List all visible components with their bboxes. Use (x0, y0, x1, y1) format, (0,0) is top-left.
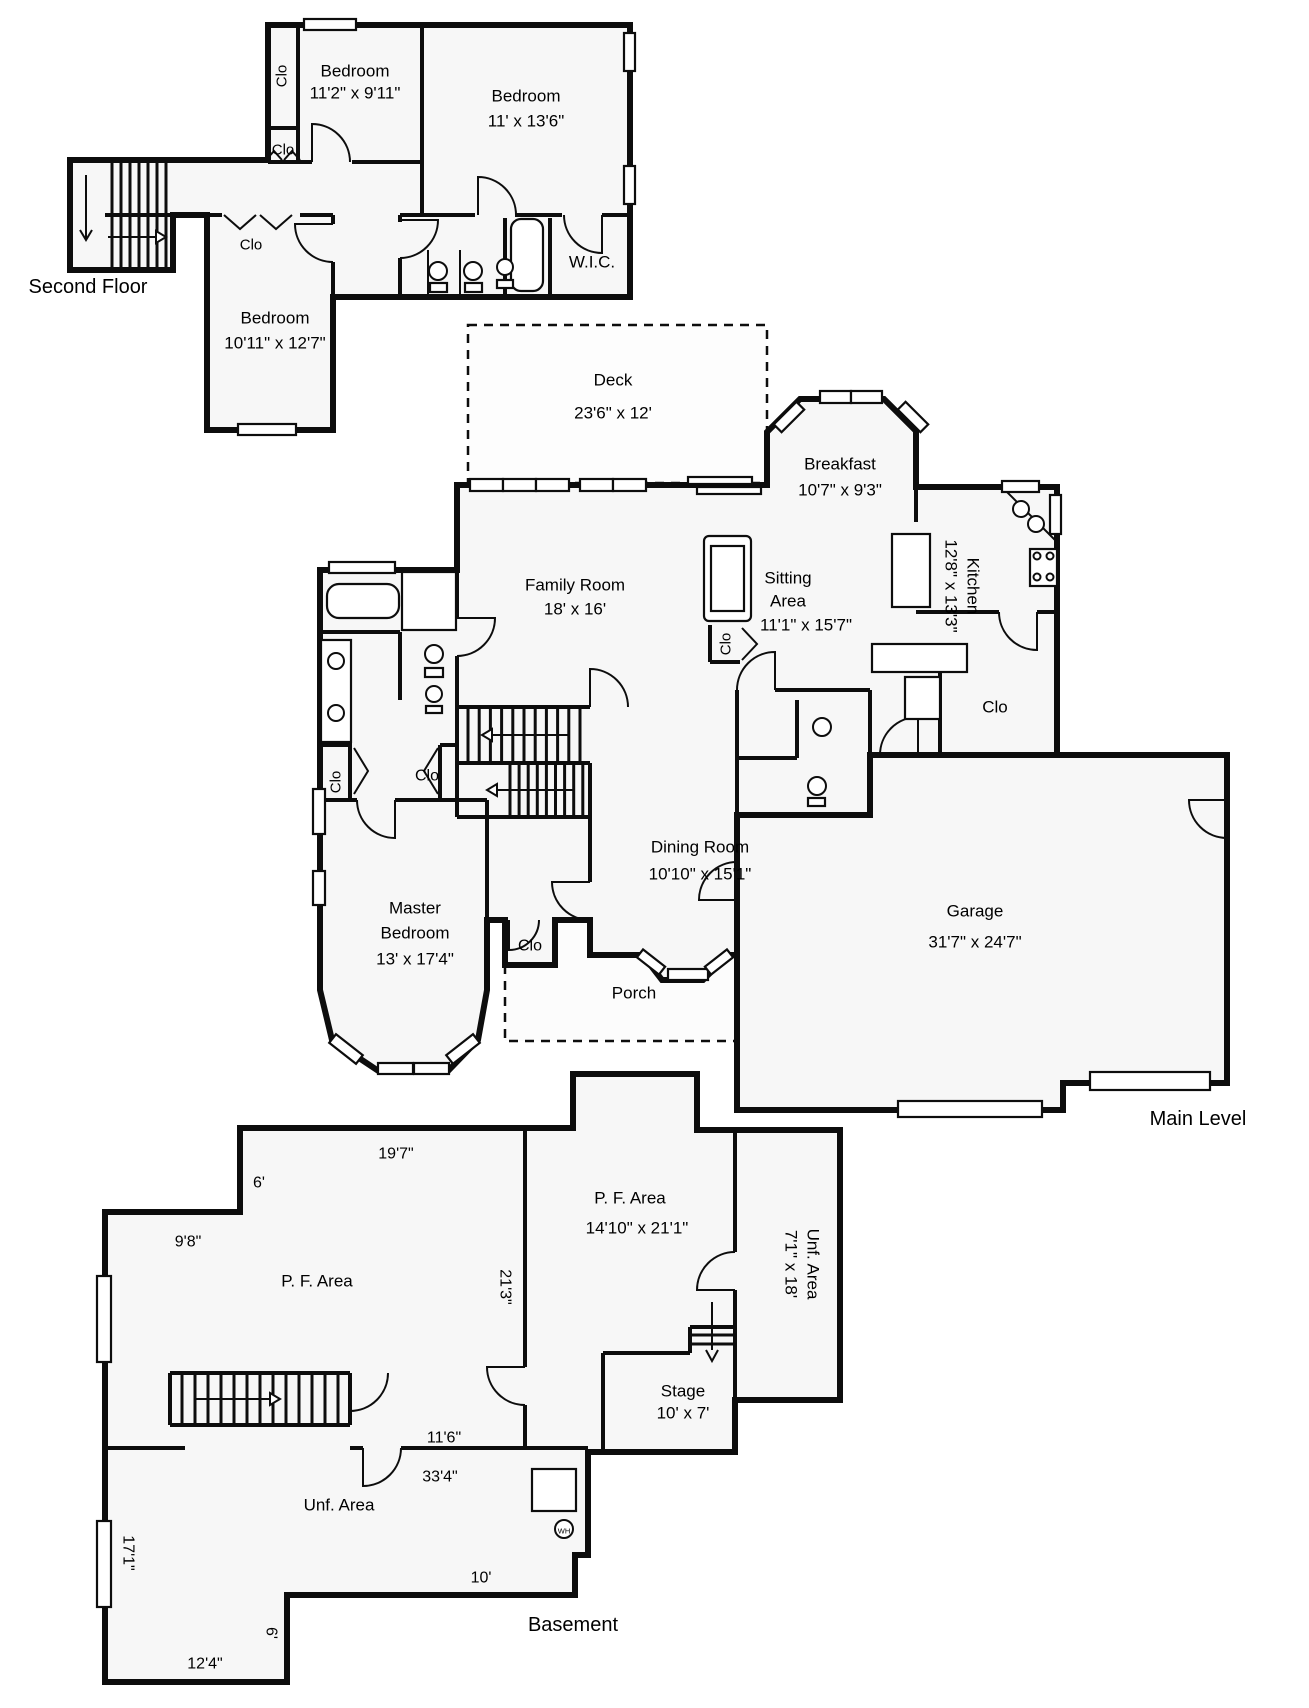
dim-kitchen: 12'8" x 13'3" (942, 539, 961, 632)
window-icon (1050, 495, 1061, 534)
window-icon (580, 479, 613, 491)
dim-bedroom1: 11'2" x 9'11" (310, 84, 401, 103)
dim-family: 18' x 16' (544, 600, 606, 619)
window-icon (378, 1063, 413, 1074)
dim-garage: 31'7" x 24'7" (928, 933, 1021, 952)
sofa-icon (711, 546, 744, 611)
room-label-pf-mid: P. F. Area (594, 1189, 666, 1208)
label-clo-hall2f: Clo (272, 142, 295, 159)
sink-icon (497, 259, 513, 275)
toilet-tank (430, 283, 447, 292)
dim-bedroom3: 10'11" x 12'7" (224, 334, 325, 353)
room-label-pf-left: P. F. Area (281, 1272, 353, 1291)
sink-base (497, 280, 513, 288)
dim-pf-mid: 14'10" x 21'1" (586, 1219, 689, 1238)
dim-98: 9'8" (175, 1234, 202, 1251)
window-icon (820, 391, 851, 403)
window-icon (503, 479, 536, 491)
dim-334: 33'4" (422, 1469, 457, 1486)
label-clo-master: Clo (518, 938, 542, 955)
toilet-tank (465, 283, 482, 292)
label-clo-sitting: Clo (718, 633, 735, 656)
dim-197: 19'7" (378, 1146, 413, 1163)
window-icon (97, 1276, 111, 1362)
toilet-tank (425, 668, 443, 677)
dim-6b: 6' (263, 1627, 280, 1639)
window-icon (697, 487, 761, 494)
window-icon (1090, 1072, 1210, 1090)
sink-icon (1028, 516, 1044, 532)
room-label-sitting2: Area (770, 592, 806, 611)
basement-area (105, 1074, 840, 1682)
toilet-icon (429, 262, 447, 280)
sink-icon (813, 718, 831, 736)
dim-unf-right: 7'1" x 18' (782, 1230, 801, 1298)
window-icon (329, 562, 395, 573)
dim-master: 13' x 17'4" (376, 950, 454, 969)
room-label-wic: W.I.C. (569, 253, 615, 272)
label-clo-bath: Clo (328, 771, 345, 794)
dim-bedroom2: 11' x 13'6" (488, 112, 564, 131)
room-label-kitchen: Kitchen (964, 558, 983, 615)
window-icon (1002, 481, 1039, 492)
dim-dining: 10'10" x 15'1" (649, 865, 752, 884)
window-icon (414, 1063, 449, 1074)
room-label-master2: Bedroom (381, 924, 450, 943)
room-label-garage: Garage (947, 902, 1004, 921)
dim-213: 21'3" (497, 1269, 514, 1304)
room-label-bedroom2: Bedroom (492, 87, 561, 106)
room-label-deck: Deck (594, 371, 633, 390)
toilet-icon (464, 262, 482, 280)
toilet-icon (425, 645, 443, 663)
window-icon (238, 424, 296, 435)
sink-icon (328, 653, 344, 669)
room-label-porch: Porch (612, 984, 656, 1003)
room-label-stage: Stage (661, 1382, 705, 1401)
window-icon (97, 1521, 111, 1607)
window-icon (470, 479, 503, 491)
label-wh: WH (558, 1527, 571, 1536)
room-label-family: Family Room (525, 576, 625, 595)
burner (1047, 574, 1054, 581)
bathtub-icon (511, 219, 543, 291)
sink-icon (328, 705, 344, 721)
dim-124: 12'4" (187, 1656, 222, 1673)
dim-sitting: 11'1" x 15'7" (760, 616, 852, 635)
room-label-unf-right: Unf. Area (804, 1229, 823, 1300)
bathtub-icon (327, 584, 399, 618)
floorplan-svg: Bedroom11'2" x 9'11"Bedroom11' x 13'6"Be… (0, 0, 1309, 1708)
sink-base (426, 706, 442, 713)
label-clo-masterhall: Clo (415, 768, 439, 785)
dim-deck: 23'6" x 12' (574, 404, 652, 423)
room-label-sitting1: Sitting (764, 569, 811, 588)
toilet-icon (808, 777, 826, 795)
island-counter (892, 534, 930, 607)
window-icon (313, 871, 325, 905)
floor-title-second: Second Floor (29, 276, 148, 298)
shower-icon (402, 572, 456, 630)
window-icon (613, 479, 646, 491)
fridge-icon (905, 677, 940, 719)
floorplan-canvas: Bedroom11'2" x 9'11"Bedroom11' x 13'6"Be… (0, 0, 1309, 1708)
window-icon (688, 477, 752, 484)
dim-10: 10' (471, 1570, 492, 1587)
dim-stage: 10' x 7' (657, 1404, 710, 1423)
window-icon (536, 479, 569, 491)
window-icon (624, 166, 635, 204)
room-label-bedroom3: Bedroom (241, 309, 310, 328)
floor-title-main: Main Level (1150, 1108, 1247, 1130)
sink-icon (1013, 501, 1029, 517)
dim-116: 11'6" (427, 1430, 461, 1447)
label-clo-bed3: Clo (240, 237, 263, 254)
window-icon (851, 391, 882, 403)
window-icon (304, 19, 356, 30)
room-label-master1: Master (389, 899, 441, 918)
window-icon (313, 789, 325, 834)
window-icon (624, 33, 635, 71)
label-clo-bed1: Clo (274, 65, 291, 88)
room-label-breakfast: Breakfast (804, 455, 876, 474)
dim-breakfast: 10'7" x 9'3" (798, 481, 882, 500)
toilet-tank (808, 798, 825, 806)
burner (1034, 553, 1041, 560)
sink-icon (426, 686, 442, 702)
room-label-unf-bottom: Unf. Area (304, 1496, 375, 1515)
dim-171: 17'1" (120, 1535, 137, 1570)
burner (1047, 553, 1054, 560)
window-icon (668, 969, 708, 980)
room-label-bedroom1: Bedroom (321, 62, 390, 81)
floor-title-basement: Basement (528, 1614, 618, 1636)
window-icon (898, 1101, 1042, 1117)
dim-6a: 6' (253, 1175, 265, 1192)
burner (1034, 574, 1041, 581)
furnace-icon (532, 1469, 576, 1511)
counter (872, 644, 967, 672)
room-label-dining: Dining Room (651, 838, 749, 857)
label-clo-kitchen: Clo (982, 698, 1008, 717)
